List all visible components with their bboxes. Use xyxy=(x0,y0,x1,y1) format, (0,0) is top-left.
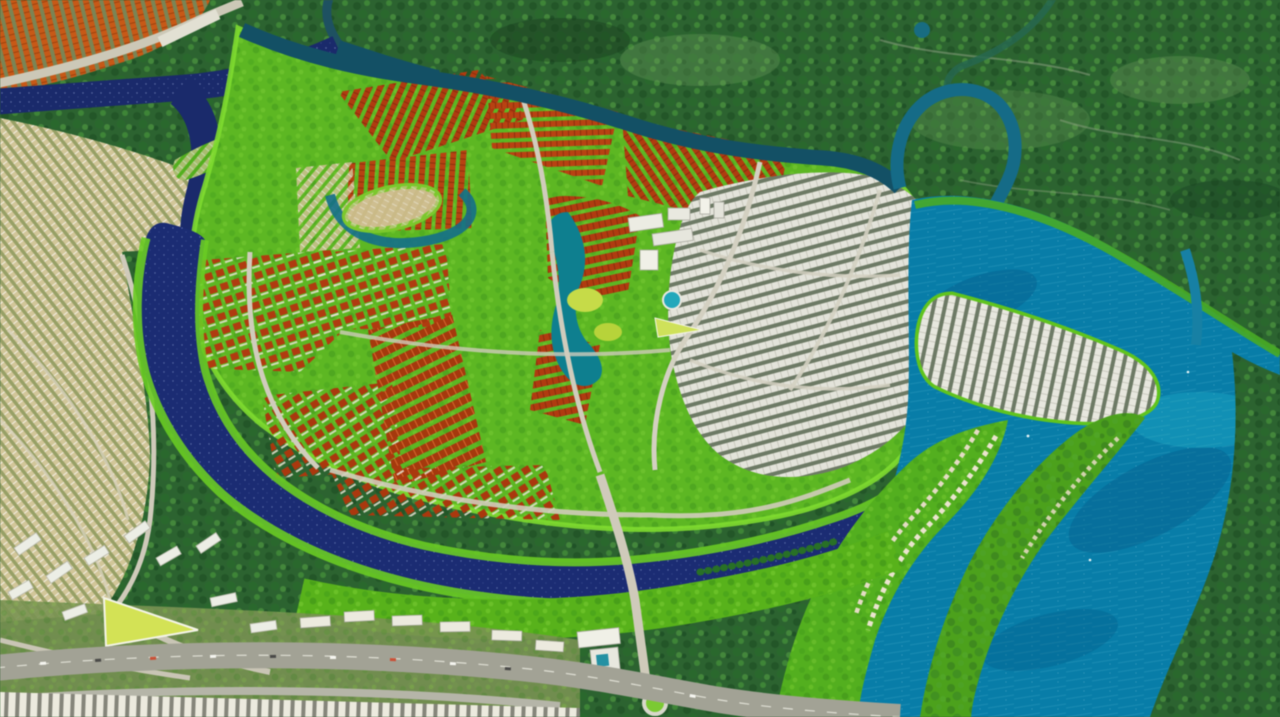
golf-green xyxy=(567,288,603,312)
forest-pond xyxy=(914,22,930,38)
aerial-masterplan-render xyxy=(0,0,1280,717)
water-park-pool xyxy=(663,291,681,309)
masterplan-scene xyxy=(0,0,1280,717)
boat xyxy=(1027,435,1030,438)
red-villa-grid-se xyxy=(330,465,560,520)
glass-facade xyxy=(596,654,609,667)
